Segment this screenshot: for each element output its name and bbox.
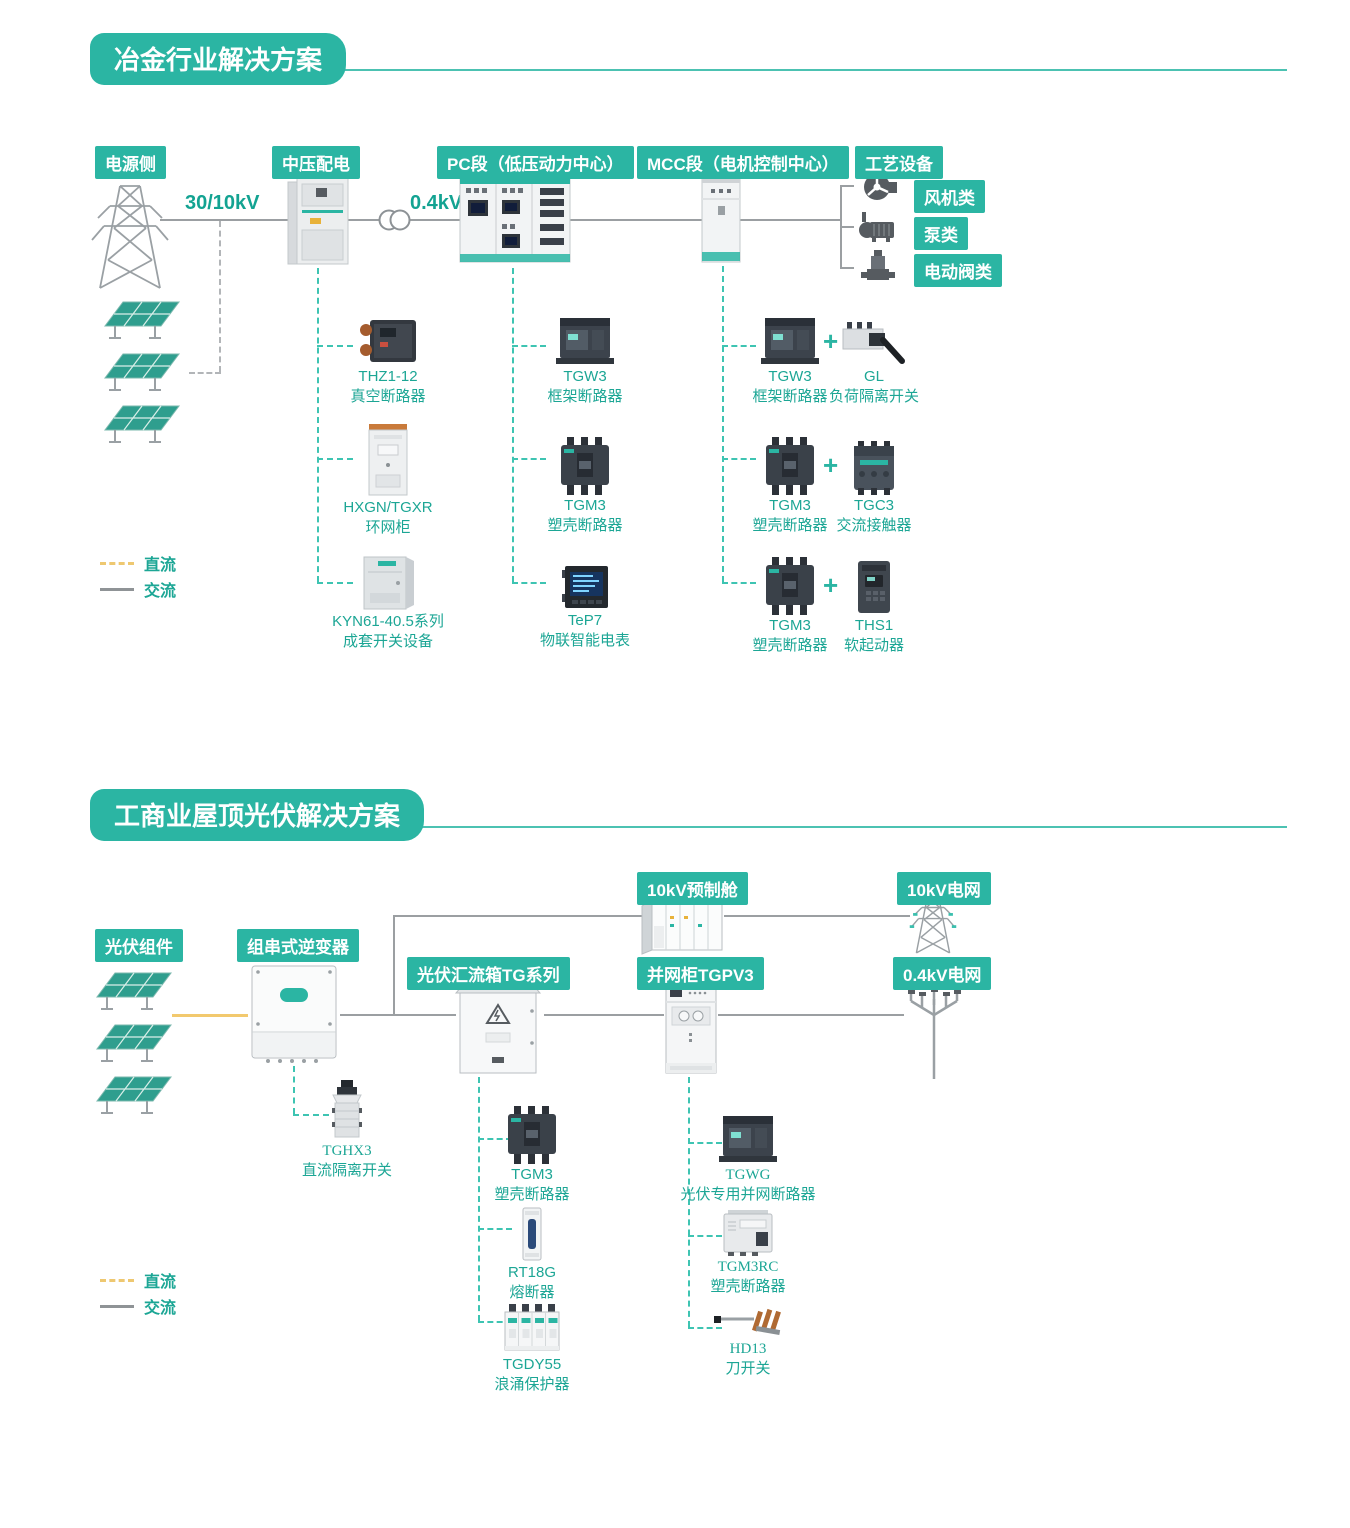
chip-power-source: 电源侧: [95, 146, 166, 179]
mcc-cabinet-image: [700, 176, 742, 266]
product-thz1-12: THZ1-12 真空断路器: [328, 316, 448, 406]
residual-current-breaker-image: [720, 1208, 776, 1256]
ac-line: [340, 1014, 456, 1016]
legend-ac-label: 交流: [144, 577, 176, 601]
product-desc: 负荷隔离开关: [829, 388, 919, 406]
product-rt18g: RT18G 熔断器: [472, 1206, 592, 1302]
utility-pole-icon: [903, 983, 965, 1081]
chip-process-equipment: 工艺设备: [855, 146, 943, 179]
ac-contactor-image: [850, 441, 898, 495]
product-name: TeP7: [568, 612, 602, 630]
product-desc: 塑壳断路器: [547, 517, 622, 535]
chip-pv-modules: 光伏组件: [95, 929, 183, 962]
product-tgw3: TGW3 框架断路器: [525, 316, 645, 406]
product-tgwg: TGWG 光伏专用并网断路器: [673, 1114, 823, 1204]
grid-cabinet-image: [662, 983, 720, 1077]
product-name: THS1: [855, 617, 893, 635]
dc-line: [172, 1014, 248, 1017]
product-hd13: HD13 刀开关: [688, 1306, 808, 1378]
product-desc: 软起动器: [844, 637, 904, 655]
chip-pump-load: 泵类: [914, 217, 968, 250]
vacuum-breaker-image: [356, 316, 420, 366]
surge-protector-image: [503, 1302, 561, 1354]
combiner-box-image: [450, 983, 546, 1077]
transformer-icon: [374, 206, 414, 234]
section2-title: 工商业屋顶光伏解决方案: [90, 789, 424, 841]
product-gl: GL 负荷隔离开关: [822, 320, 926, 406]
ac-line: [544, 1014, 664, 1016]
product-tgm3: TGM3 塑壳断路器: [525, 437, 645, 535]
legend-ac: 交流: [100, 1294, 176, 1318]
chip-combiner-box: 光伏汇流箱TG系列: [407, 957, 570, 990]
dc-line-swatch: [100, 1279, 134, 1282]
product-desc: 塑壳断路器: [710, 1278, 785, 1296]
solar-panel-icon: [103, 352, 183, 394]
product-name: TGW3: [563, 368, 606, 386]
product-tgdy55: TGDY55 浪涌保护器: [472, 1302, 592, 1394]
chip-grid-cabinet: 并网柜TGPV3: [637, 957, 764, 990]
product-name: TGM3: [564, 497, 606, 515]
product-desc: 环网柜: [365, 519, 410, 537]
mcc-products-dashed-vertical: [722, 266, 724, 582]
legend-ac-label: 交流: [144, 1294, 176, 1318]
product-name: TGM3: [769, 617, 811, 635]
product-name: HD13: [730, 1340, 767, 1358]
pc-products-dashed-vertical: [512, 268, 514, 582]
solution-diagram-page: { "colors": {"teal": "#2bb5a3", "teal_te…: [0, 0, 1350, 1528]
chip-mcc-section: MCC段（电机控制中心）: [637, 146, 849, 179]
ring-main-unit-image: [366, 421, 410, 497]
pv-branch-dashed-vertical: [219, 221, 221, 372]
chip-pc-section: PC段（低压动力中心）: [437, 146, 634, 179]
voltage-label-mv: 30/10kV: [185, 192, 260, 215]
frame-breaker-image: [554, 316, 616, 366]
legend-dc-label: 直流: [144, 1268, 176, 1292]
legend-dc: 直流: [100, 551, 176, 575]
molded-case-breaker-image: [557, 437, 613, 495]
product-desc: 塑壳断路器: [494, 1186, 569, 1204]
product-desc: 框架断路器: [752, 388, 827, 406]
product-desc: 直流隔离开关: [302, 1162, 392, 1180]
dc-line-swatch: [100, 562, 134, 565]
chip-10kv-grid: 10kV电网: [897, 872, 991, 905]
product-name: TGM3: [511, 1166, 553, 1184]
product-desc: 真空断路器: [350, 388, 425, 406]
product-name: KYN61-40.5系列: [332, 613, 444, 631]
product-pv-tgm3: TGM3 塑壳断路器: [472, 1106, 592, 1204]
chip-string-inverter: 组串式逆变器: [237, 929, 359, 962]
product-name: TGC3: [854, 497, 894, 515]
solar-panel-icon: [103, 300, 183, 342]
product-name: TGM3: [769, 497, 811, 515]
inverter-product-dashed-vertical: [293, 1066, 295, 1114]
ac-line-to-10kv-grid: [724, 915, 910, 917]
molded-case-breaker-image: [762, 557, 818, 615]
product-name: GL: [864, 368, 884, 386]
valve-icon: [860, 248, 898, 286]
prefab-container-image: [640, 896, 724, 956]
solar-panel-icon: [95, 1075, 175, 1117]
chip-mv-distribution: 中压配电: [272, 146, 360, 179]
string-inverter-image: [246, 962, 342, 1066]
product-desc: 光伏专用并网断路器: [680, 1186, 815, 1204]
product-tghx3: TGHX3 直流隔离开关: [297, 1078, 397, 1180]
product-desc: 物联智能电表: [540, 632, 630, 650]
product-name: TGDY55: [503, 1356, 561, 1374]
product-name: TGM3RC: [718, 1258, 779, 1276]
ac-line-swatch: [100, 588, 134, 591]
mv-cabinet-image: [286, 176, 350, 268]
ac-line: [718, 1014, 904, 1016]
chip-prefab-station: 10kV预制舱: [637, 872, 748, 905]
product-desc: 浪涌保护器: [494, 1376, 569, 1394]
fuse-holder-image: [519, 1206, 545, 1262]
ac-line-swatch: [100, 1305, 134, 1308]
molded-case-breaker-image: [762, 437, 818, 495]
legend-dc: 直流: [100, 1268, 176, 1292]
load-isolation-switch-image: [841, 320, 907, 366]
ac-line-to-prefab: [393, 915, 642, 917]
product-ths1: THS1 软起动器: [822, 559, 926, 655]
product-tep7: TeP7 物联智能电表: [525, 564, 645, 650]
product-tgc3: TGC3 交流接触器: [822, 441, 926, 535]
product-name: HXGN/TGXR: [343, 499, 432, 517]
ac-branch-vertical: [393, 915, 395, 1016]
product-desc: 框架断路器: [547, 388, 622, 406]
legend-ac: 交流: [100, 577, 176, 601]
pv-branch-dashed-horizontal: [189, 372, 221, 374]
chip-valve-load: 电动阀类: [914, 254, 1002, 287]
product-desc: 熔断器: [509, 1284, 554, 1302]
frame-breaker-image: [759, 316, 821, 366]
product-desc: 塑壳断路器: [752, 637, 827, 655]
product-desc: 交流接触器: [836, 517, 911, 535]
voltage-label-lv: 0.4kV: [410, 192, 462, 215]
legend-dc-label: 直流: [144, 551, 176, 575]
product-name: RT18G: [508, 1264, 556, 1282]
switchgear-cabinet-image: [358, 553, 418, 611]
molded-case-breaker-image: [504, 1106, 560, 1164]
product-desc: 刀开关: [725, 1360, 770, 1378]
pc-switchgear-image: [456, 172, 574, 268]
product-name: THZ1-12: [358, 368, 417, 386]
solar-panel-icon: [95, 971, 175, 1013]
solar-panel-icon: [95, 1023, 175, 1065]
mv-products-dashed-vertical: [317, 268, 319, 582]
pv-grid-breaker-image: [717, 1114, 779, 1164]
product-tgm3rc: TGM3RC 塑壳断路器: [688, 1208, 808, 1296]
pump-icon: [856, 210, 900, 244]
product-hxgn: HXGN/TGXR 环网柜: [328, 421, 448, 537]
chip-fan-load: 风机类: [914, 180, 985, 213]
process-stub-fan: [840, 185, 854, 187]
section1-title: 冶金行业解决方案: [90, 33, 346, 85]
transmission-tower-icon: [86, 178, 174, 292]
chip-04kv-grid: 0.4kV电网: [893, 957, 991, 990]
product-desc: 塑壳断路器: [752, 517, 827, 535]
dc-isolation-switch-image: [327, 1078, 367, 1140]
product-name: TGHX3: [322, 1142, 371, 1160]
solar-panel-icon: [103, 404, 183, 446]
product-kyn61: KYN61-40.5系列 成套开关设备: [328, 553, 448, 651]
soft-starter-image: [854, 559, 894, 615]
product-name: TGWG: [726, 1166, 771, 1184]
knife-switch-image: [712, 1306, 784, 1338]
process-stub-valve: [840, 267, 854, 269]
process-stub-pump: [840, 226, 854, 228]
product-name: TGW3: [768, 368, 811, 386]
product-desc: 成套开关设备: [343, 633, 433, 651]
smart-meter-image: [560, 564, 610, 610]
